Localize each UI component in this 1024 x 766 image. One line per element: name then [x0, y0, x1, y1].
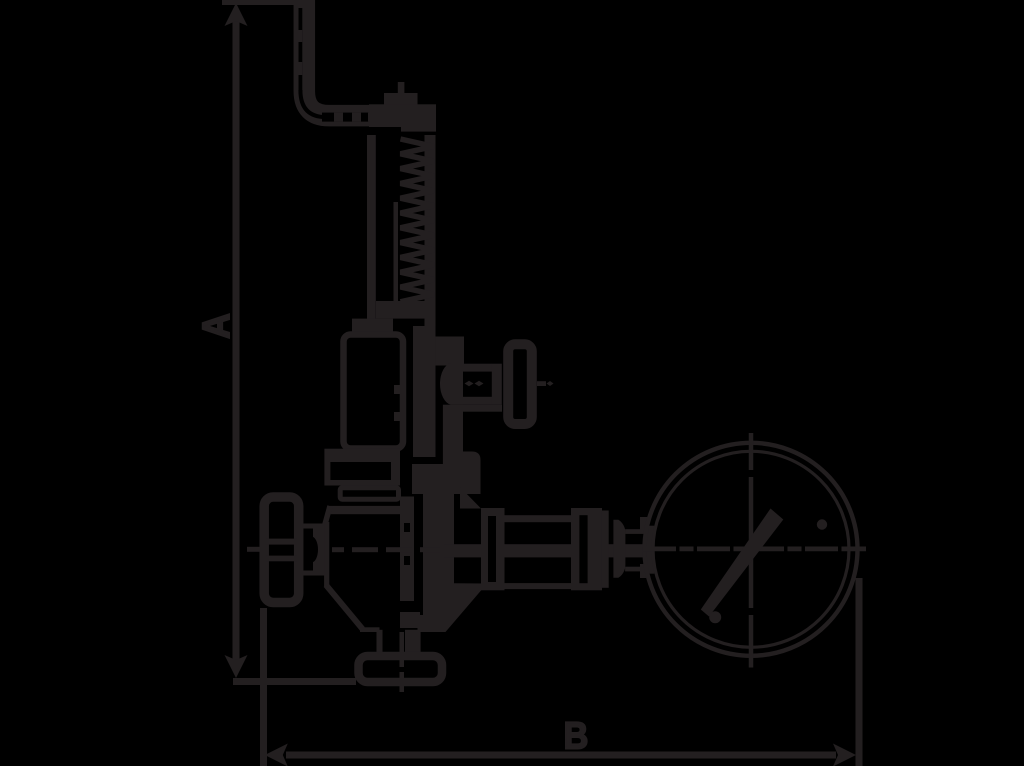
svg-text:A: A: [195, 313, 238, 338]
svg-text:B: B: [564, 714, 589, 757]
